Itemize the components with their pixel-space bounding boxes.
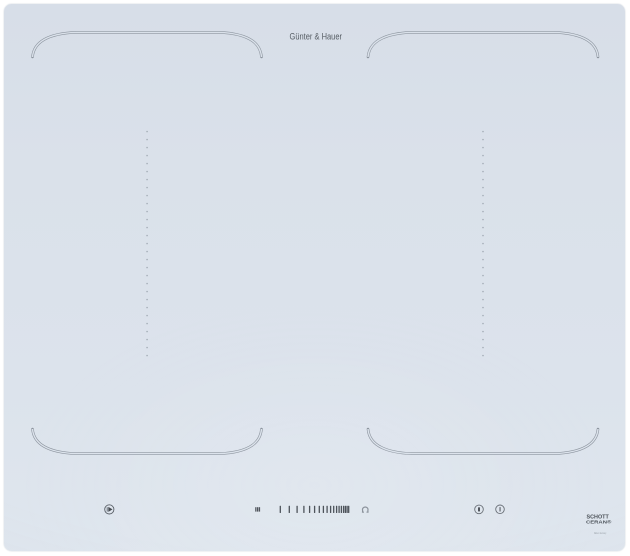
svg-text:CERAN®: CERAN®	[586, 519, 612, 524]
svg-text:Günter & Hauer: Günter & Hauer	[290, 31, 343, 41]
svg-text:Made in Germany: Made in Germany	[594, 531, 607, 535]
